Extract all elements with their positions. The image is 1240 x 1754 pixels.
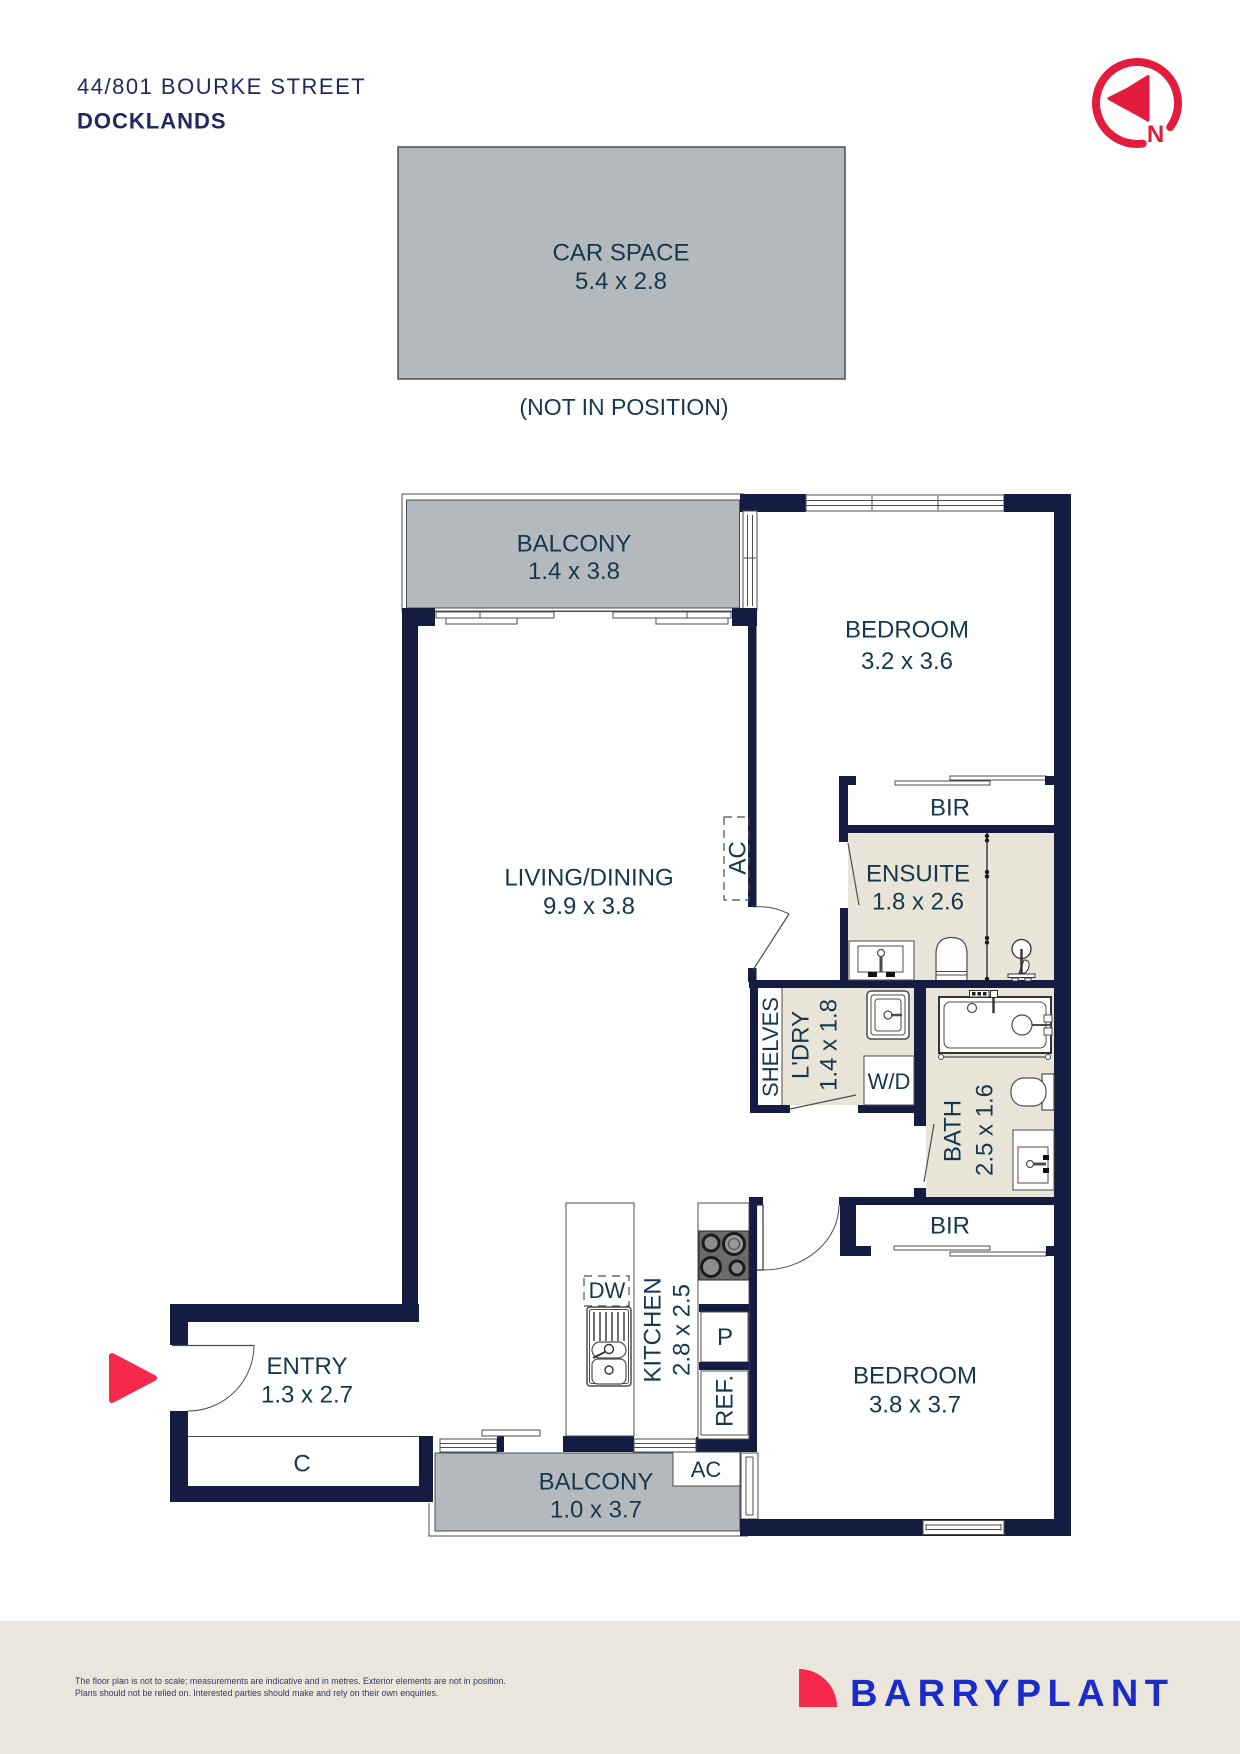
- svg-text:BEDROOM: BEDROOM: [845, 617, 969, 644]
- svg-text:LIVING/DINING: LIVING/DINING: [504, 865, 673, 892]
- svg-text:KITCHEN: KITCHEN: [640, 1277, 667, 1382]
- svg-text:BIR: BIR: [930, 795, 970, 822]
- svg-text:ENTRY: ENTRY: [267, 1353, 348, 1380]
- svg-text:5.4 x 2.8: 5.4 x 2.8: [575, 268, 667, 295]
- svg-text:(NOT IN POSITION): (NOT IN POSITION): [519, 394, 728, 420]
- svg-text:2.8 x 2.5: 2.8 x 2.5: [669, 1284, 696, 1376]
- svg-text:BEDROOM: BEDROOM: [853, 1363, 977, 1390]
- svg-text:3.8 x 3.7: 3.8 x 3.7: [869, 1392, 961, 1419]
- svg-text:CAR SPACE: CAR SPACE: [553, 240, 690, 267]
- svg-text:ENSUITE: ENSUITE: [866, 861, 970, 888]
- svg-text:1.8 x 2.6: 1.8 x 2.6: [872, 889, 964, 916]
- svg-text:BALCONY: BALCONY: [539, 1469, 654, 1496]
- svg-text:DOCKLANDS: DOCKLANDS: [77, 109, 227, 134]
- svg-text:C: C: [293, 1451, 310, 1478]
- svg-text:44/801 BOURKE STREET: 44/801 BOURKE STREET: [77, 74, 366, 99]
- svg-text:1.0 x 3.7: 1.0 x 3.7: [550, 1497, 642, 1524]
- svg-text:DW: DW: [589, 1278, 626, 1303]
- svg-text:1.4 x 3.8: 1.4 x 3.8: [528, 558, 620, 585]
- svg-text:P: P: [717, 1324, 733, 1351]
- svg-text:Plans should not be relied on.: Plans should not be relied on. Intereste…: [75, 1688, 438, 1698]
- svg-text:SHELVES: SHELVES: [758, 997, 783, 1097]
- svg-text:BALCONY: BALCONY: [517, 531, 632, 558]
- svg-text:W/D: W/D: [868, 1069, 911, 1094]
- svg-text:1.3 x 2.7: 1.3 x 2.7: [261, 1382, 353, 1409]
- svg-text:2.5 x 1.6: 2.5 x 1.6: [972, 1084, 999, 1176]
- svg-text:3.2 x 3.6: 3.2 x 3.6: [861, 648, 953, 675]
- svg-text:N: N: [1147, 121, 1164, 148]
- svg-text:AC: AC: [725, 841, 752, 874]
- svg-text:1.4 x 1.8: 1.4 x 1.8: [816, 999, 843, 1091]
- svg-text:The floor plan is not to scale: The floor plan is not to scale; measurem…: [75, 1676, 506, 1686]
- svg-text:BIR: BIR: [930, 1213, 970, 1240]
- svg-text:L'DRY: L'DRY: [788, 1011, 815, 1079]
- svg-text:AC: AC: [691, 1457, 722, 1482]
- svg-text:9.9 x 3.8: 9.9 x 3.8: [543, 893, 635, 920]
- svg-text:BATH: BATH: [940, 1100, 967, 1162]
- svg-text:REF.: REF.: [712, 1375, 739, 1427]
- svg-text:BARRYPLANT: BARRYPLANT: [850, 1673, 1174, 1715]
